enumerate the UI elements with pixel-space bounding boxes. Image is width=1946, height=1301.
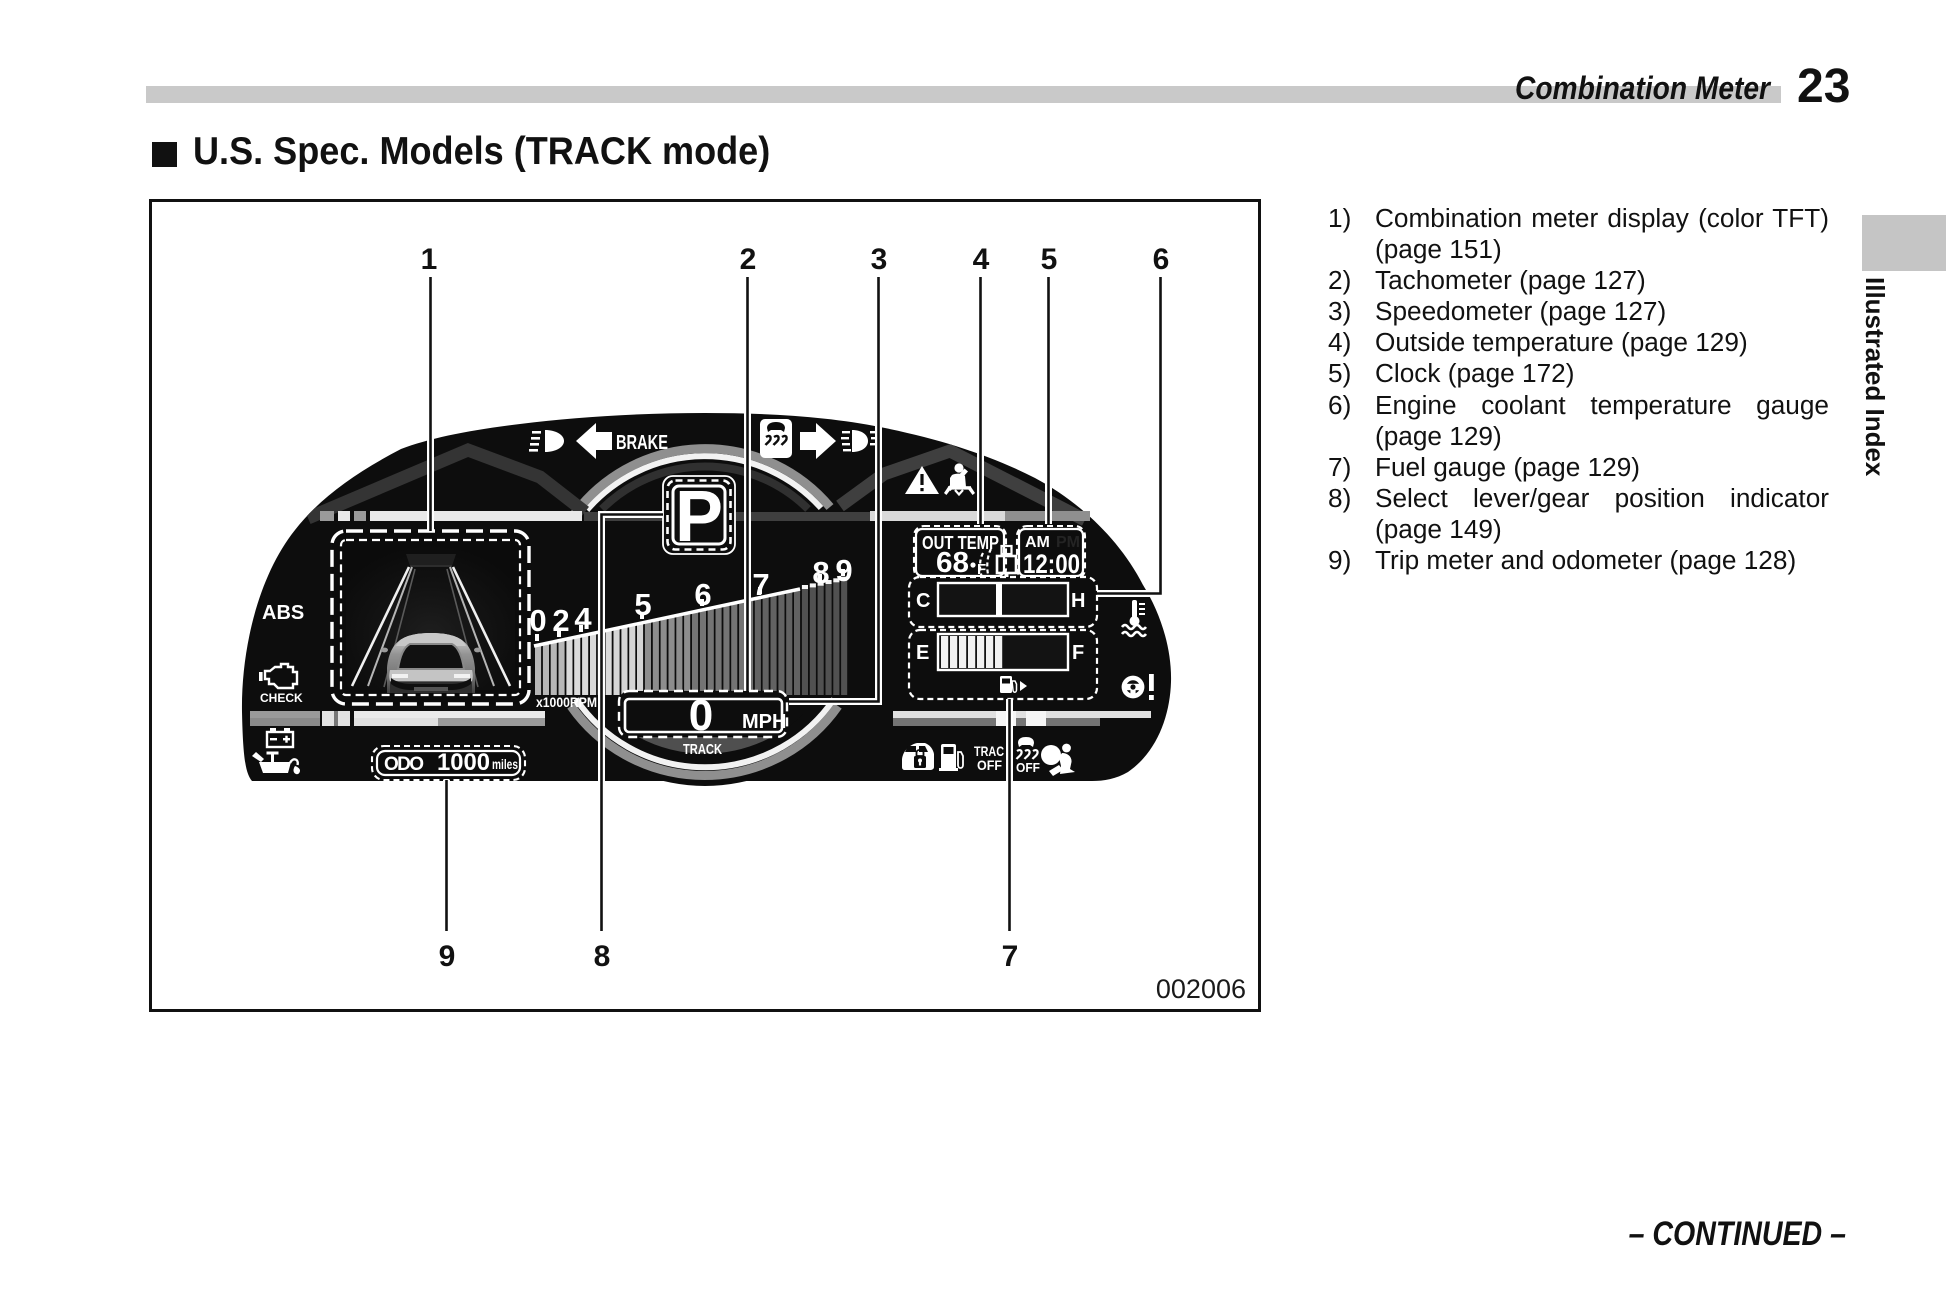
svg-text:9: 9 [439,940,456,973]
svg-text:x1000RPM: x1000RPM [536,694,597,710]
svg-text:7: 7 [1002,940,1019,973]
svg-text:8: 8 [812,555,829,590]
svg-text:9: 9 [835,553,852,588]
svg-text:0: 0 [689,691,713,740]
svg-text:6: 6 [694,577,711,612]
svg-text:ODO: ODO [384,754,424,775]
svg-text:4: 4 [574,601,592,636]
svg-text:ABS: ABS [262,602,304,624]
svg-text:BRAKE: BRAKE [616,432,668,454]
svg-text:68: 68 [936,547,969,579]
svg-text:2: 2 [740,243,757,276]
svg-text:C: C [916,590,930,612]
svg-text:MPH: MPH [742,711,786,733]
svg-text:1000: 1000 [437,749,490,776]
svg-text:miles: miles [492,756,518,772]
svg-text:OFF: OFF [977,757,1002,773]
svg-text:F: F [1072,642,1084,664]
svg-text:2: 2 [552,603,569,638]
svg-text:3: 3 [871,243,888,276]
svg-text:CHECK: CHECK [260,691,303,705]
svg-text:H: H [1071,590,1085,612]
svg-text:E: E [916,642,929,664]
svg-text:5: 5 [1041,243,1058,276]
svg-text:12:00: 12:00 [1023,549,1080,579]
svg-text:P: P [675,477,723,557]
svg-text:6: 6 [1153,243,1170,276]
svg-text:OFF: OFF [1016,761,1040,775]
svg-text:4: 4 [973,243,990,276]
svg-text:TRACK: TRACK [683,741,722,758]
svg-text:0: 0 [529,603,546,638]
svg-text:7: 7 [752,567,769,602]
svg-text:5: 5 [634,587,651,622]
svg-text:1: 1 [421,243,438,276]
svg-text:8: 8 [594,940,611,973]
